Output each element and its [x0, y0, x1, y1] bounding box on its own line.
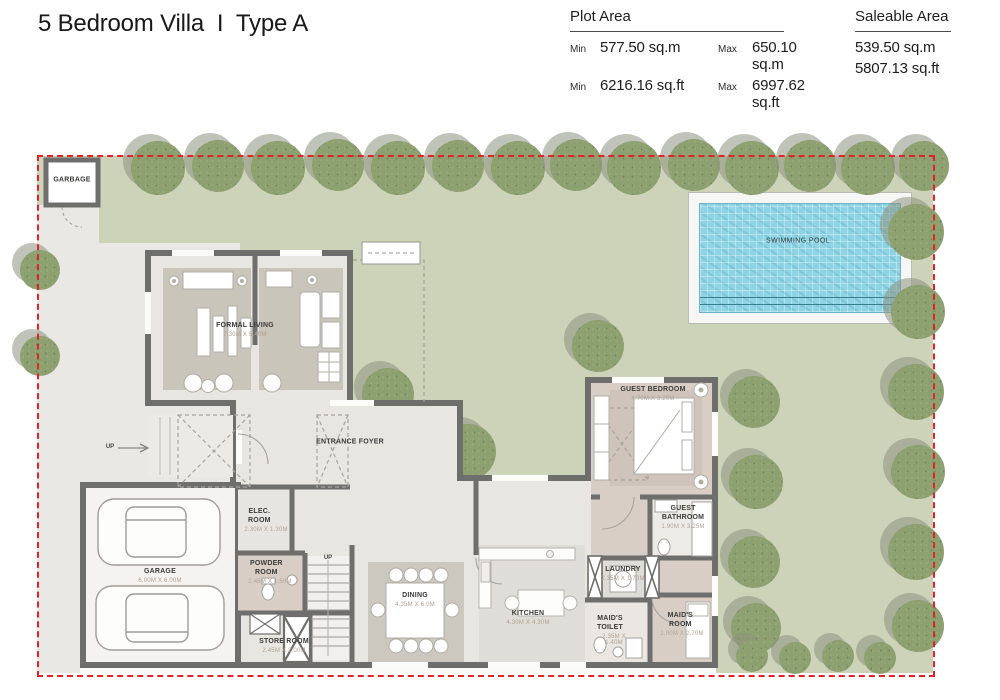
car-icon	[96, 586, 224, 650]
planter	[362, 242, 420, 264]
washing-machine-icon	[610, 566, 636, 592]
garbage-room	[46, 160, 98, 205]
entry-steps	[118, 415, 233, 477]
maids-room-bed	[686, 602, 710, 658]
floor-plan-svg	[0, 0, 1000, 700]
car-icon	[98, 499, 220, 565]
